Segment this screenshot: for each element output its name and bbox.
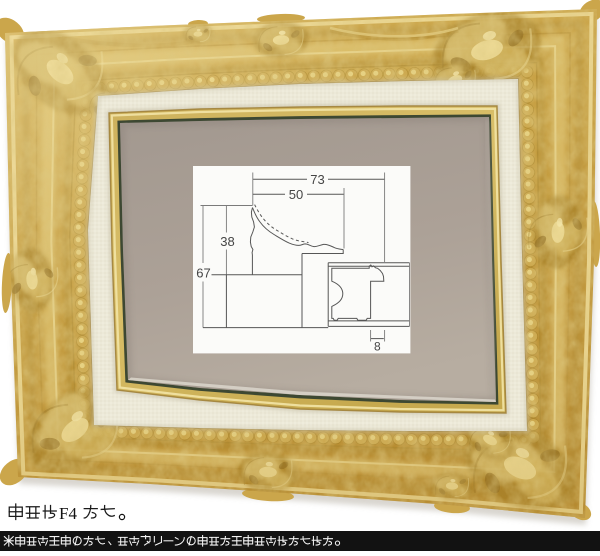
svg-text:50: 50 bbox=[289, 187, 303, 202]
svg-text:73: 73 bbox=[310, 172, 324, 187]
svg-text:67: 67 bbox=[196, 266, 210, 281]
svg-text:38: 38 bbox=[220, 234, 234, 249]
svg-text:F4: F4 bbox=[59, 504, 77, 523]
svg-text:8: 8 bbox=[374, 340, 381, 354]
